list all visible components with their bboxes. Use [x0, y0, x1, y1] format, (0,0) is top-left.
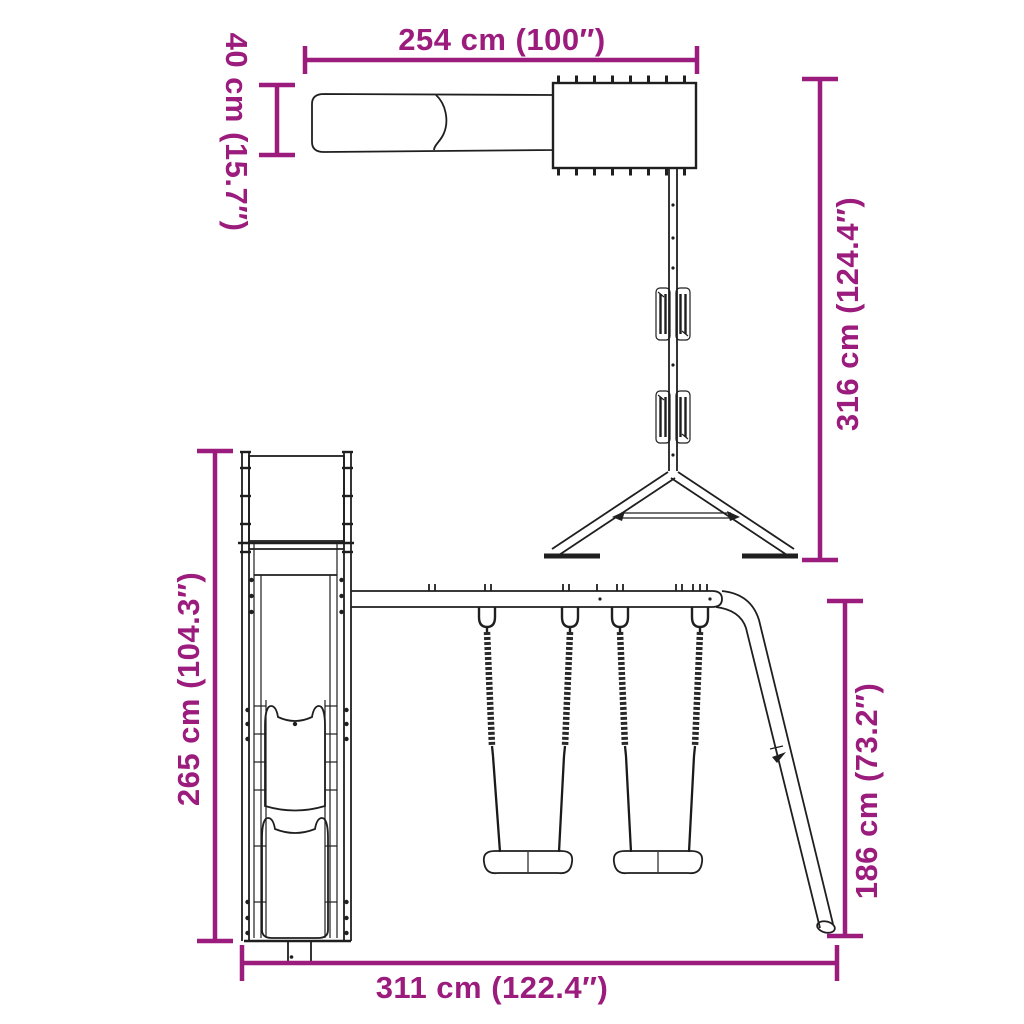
slide-end-tab	[288, 941, 311, 962]
slide-section-joint	[434, 95, 446, 150]
dim-label-top-width: 254 cm (100″)	[398, 22, 605, 58]
tower-posts	[240, 452, 353, 941]
dim-label-slide-width: 40 cm (15.7″)	[218, 33, 254, 232]
dim-label-total-length: 311 cm (122.4″)	[376, 970, 609, 1006]
dim-line-slide-width	[259, 85, 295, 155]
swing-hanger-pair-upper	[656, 288, 690, 340]
swing-hanger-pair-lower	[656, 391, 690, 443]
swing-seat-2	[614, 851, 702, 873]
roof-panel	[553, 83, 696, 168]
slide-profile-upper	[265, 706, 325, 811]
a-frame-top-view	[544, 472, 798, 556]
slide-profile-lower	[262, 818, 328, 938]
swing-ropes	[487, 632, 700, 852]
swing-hangers-side-view	[479, 607, 708, 633]
dim-label-depth: 316 cm (124.4″)	[830, 197, 866, 431]
beam-ticks	[429, 584, 712, 601]
dim-label-tower-height: 265 cm (104.3″)	[171, 572, 207, 806]
dim-label-swing-height: 186 cm (73.2″)	[849, 683, 885, 900]
dimension-diagram: 254 cm (100″) 40 cm (15.7″) 316 cm (124.…	[0, 0, 1024, 1024]
top-view-group	[312, 79, 798, 556]
swing-leg	[716, 591, 836, 935]
tower-railing	[249, 456, 344, 541]
swing-seat-1	[484, 851, 572, 873]
swing-beam-side-view	[351, 591, 722, 607]
slide-top-view	[312, 94, 553, 152]
